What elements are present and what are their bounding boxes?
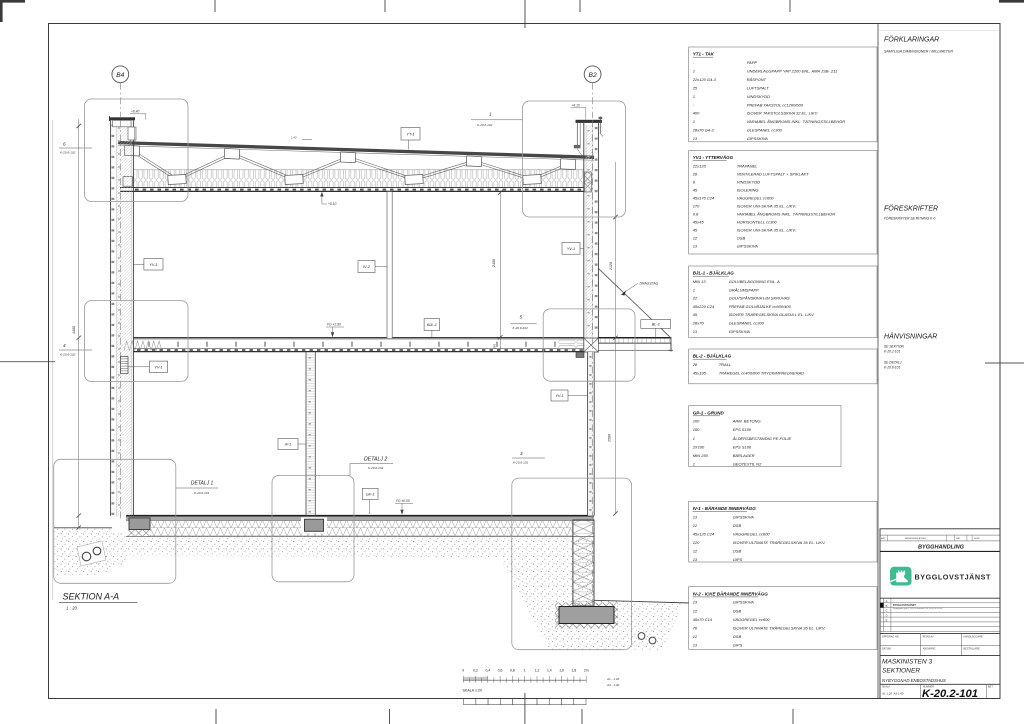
svg-text:2400: 2400 (492, 259, 496, 268)
svg-text:6: 6 (63, 142, 66, 147)
svg-text:+6.10: +6.10 (572, 104, 581, 108)
svg-text:45: 45 (693, 312, 698, 317)
svg-text:25: 25 (692, 85, 698, 90)
svg-text:IV-2 - ICKE BÄRANDE INNERVÄGG: IV-2 - ICKE BÄRANDE INNERVÄGG (693, 590, 769, 596)
svg-text:E: E (886, 618, 888, 622)
svg-text:RITAD AV: RITAD AV (923, 636, 934, 639)
svg-text:FÖRESKRIFTER SE RITNING K-0: FÖRESKRIFTER SE RITNING K-0 (884, 217, 935, 221)
svg-text:400: 400 (693, 111, 700, 116)
svg-text:12: 12 (693, 236, 698, 241)
svg-text:B2: B2 (589, 72, 597, 79)
svg-text:13: 13 (693, 643, 698, 648)
svg-text:28: 28 (692, 362, 698, 367)
svg-text:1,8: 1,8 (572, 669, 577, 673)
svg-text:12: 12 (693, 634, 698, 639)
svg-text:A1 1:20 A3 1:40: A1 1:20 A3 1:40 (881, 692, 904, 696)
svg-text:FÖRESKRIFTER: FÖRESKRIFTER (884, 205, 938, 213)
svg-text:YT1 - TAK: YT1 - TAK (693, 52, 715, 57)
svg-text:VÄGGREGEL cc600: VÄGGREGEL cc600 (733, 617, 771, 622)
svg-text:DRAGSTAG: DRAGSTAG (640, 282, 659, 286)
svg-text:FG +2.90: FG +2.90 (327, 323, 341, 327)
svg-text:0: 0 (462, 669, 464, 673)
svg-text:VARIABEL ÅNGBROMS INKL. TÄTNIN: VARIABEL ÅNGBROMS INKL. TÄTNINGSTILLBEHÖ… (747, 119, 846, 124)
svg-text:SE DETALJ: SE DETALJ (884, 361, 902, 365)
svg-text:BESTÄLLARE: BESTÄLLARE (964, 648, 980, 651)
svg-text:1,6: 1,6 (559, 669, 564, 673)
svg-text:DETALJ 2: DETALJ 2 (364, 457, 387, 463)
svg-text:45: 45 (693, 228, 698, 233)
svg-text:45x70 C14: 45x70 C14 (693, 617, 713, 622)
svg-text:TRALL: TRALL (719, 362, 731, 367)
svg-text:0,6: 0,6 (498, 669, 503, 673)
svg-text:YV1 - YTTERVÄGG: YV1 - YTTERVÄGG (693, 154, 734, 160)
svg-text:28x70: 28x70 (692, 321, 705, 326)
svg-text:OSB: OSB (733, 608, 742, 613)
svg-text:D: D (886, 614, 888, 618)
svg-text:MIN 250: MIN 250 (693, 453, 709, 458)
svg-text:GIPS: GIPS (733, 643, 743, 648)
svg-text:ÅLDERSBESTÄNDIG PE-FOLIE: ÅLDERSBESTÄNDIG PE-FOLIE (732, 436, 792, 441)
svg-text:45x120 C24: 45x120 C24 (693, 532, 715, 537)
svg-text:GF-1: GF-1 (366, 493, 375, 497)
svg-text:22x120 G4-3: 22x120 G4-3 (692, 77, 717, 82)
svg-text:70: 70 (693, 626, 698, 631)
svg-text:1:40: 1:40 (291, 136, 297, 140)
svg-text:BYGGLOVSTJÄNST: BYGGLOVSTJÄNST (915, 573, 991, 582)
svg-text:ISOLERING: ISOLERING (737, 188, 759, 193)
svg-text:+6.40: +6.40 (131, 110, 140, 114)
svg-text:13: 13 (693, 557, 698, 562)
svg-text:1: 1 (693, 287, 695, 292)
svg-text:PAPP: PAPP (747, 60, 758, 65)
svg-text:IV-1 - BÄRANDE INNERVÄGG: IV-1 - BÄRANDE INNERVÄGG (693, 505, 757, 511)
svg-text:VÄGGREGEL cc600: VÄGGREGEL cc600 (737, 196, 775, 201)
svg-text:MASKINISTEN 3: MASKINISTEN 3 (882, 659, 933, 666)
svg-text:IV-1: IV-1 (285, 443, 292, 447)
svg-text:ISOVER TAKSTOLSSKIVA 32 EL. LI: ISOVER TAKSTOLSSKIVA 32 EL. LIKV (747, 111, 818, 116)
svg-text:B4: B4 (116, 72, 124, 79)
svg-text:295: 295 (493, 344, 497, 350)
svg-text:BET: BET (988, 686, 993, 689)
svg-text:EPS S100: EPS S100 (733, 444, 752, 449)
svg-text:170: 170 (693, 204, 700, 209)
svg-text:DATUM: DATUM (882, 648, 891, 651)
svg-text:UPPDRAG NR: UPPDRAG NR (882, 636, 899, 639)
svg-text:K-20.6-101: K-20.6-101 (884, 366, 900, 370)
svg-text:13: 13 (693, 329, 698, 334)
svg-text:HANDLÄGGARE: HANDLÄGGARE (964, 636, 984, 639)
svg-text:1: 1 (693, 119, 695, 124)
svg-text:0.8: 0.8 (693, 212, 699, 217)
svg-text:K-20.2-101: K-20.2-101 (884, 350, 900, 354)
svg-text:DETALJ 1: DETALJ 1 (191, 481, 214, 487)
svg-text:PREFAB TAKSTOL cc1200/600: PREFAB TAKSTOL cc1200/600 (747, 102, 804, 107)
svg-text:FG ±0.00: FG ±0.00 (396, 499, 410, 503)
svg-text:GLESPANEL cc300: GLESPANEL cc300 (747, 128, 783, 133)
svg-text:+5.10: +5.10 (328, 202, 337, 206)
svg-text:ISOVER UNI-SKIVA 35 EL. LIKV.: ISOVER UNI-SKIVA 35 EL. LIKV. (737, 204, 796, 209)
svg-text:YV-1: YV-1 (555, 394, 563, 398)
svg-text:GIPSSKIVA: GIPSSKIVA (747, 136, 768, 141)
svg-text:GIPSSKIVA: GIPSSKIVA (733, 600, 754, 605)
svg-text:NYBYGGNAD ENBOSTADSHUS: NYBYGGNAD ENBOSTADSHUS (882, 678, 946, 683)
svg-text:1: 1 (524, 669, 526, 673)
svg-text:ISOVER ULTIMATE TRÄREGELSKIVA: ISOVER ULTIMATE TRÄREGELSKIVA 36 EL. LIK… (733, 540, 826, 545)
svg-text:45x170 C24: 45x170 C24 (693, 196, 715, 201)
svg-text:28x70 G4-3: 28x70 G4-3 (692, 128, 715, 133)
svg-text:GRÅLUMSPAPP: GRÅLUMSPAPP (729, 287, 759, 292)
svg-text:A1 - 1:20: A1 - 1:20 (606, 677, 620, 681)
svg-text:BJL-1: BJL-1 (427, 323, 437, 327)
svg-text:SE SEKTION: SE SEKTION (884, 345, 904, 349)
svg-text:5: 5 (520, 315, 523, 320)
svg-text:HORISONTELL cc300: HORISONTELL cc300 (737, 220, 778, 225)
svg-text:100: 100 (693, 427, 700, 432)
svg-text:GOLVSPÅNSKIVA LIM SKRUVAS: GOLVSPÅNSKIVA LIM SKRUVAS (729, 296, 790, 301)
svg-text:B: B (886, 604, 888, 608)
svg-text:12: 12 (693, 608, 698, 613)
svg-text:K-20.6-101: K-20.6-101 (513, 461, 529, 465)
svg-text:BYGGHANDLING: BYGGHANDLING (918, 544, 965, 550)
svg-text:K-20.6-102: K-20.6-102 (60, 353, 76, 357)
svg-text:ARM. BETONG: ARM. BETONG (732, 419, 761, 424)
svg-text:RÅSPONT: RÅSPONT (747, 77, 767, 82)
svg-text:GIPSSKIVA: GIPSSKIVA (737, 244, 758, 249)
svg-text:ANSVARIG: ANSVARIG (923, 648, 936, 651)
svg-text:K-20.6-102: K-20.6-102 (477, 123, 493, 127)
svg-text:100: 100 (693, 419, 700, 424)
svg-text:C: C (886, 609, 888, 613)
svg-text:BÄRLAGER: BÄRLAGER (733, 453, 755, 458)
svg-text:120: 120 (693, 540, 700, 545)
svg-text:12: 12 (693, 523, 698, 528)
svg-text:BYGGLOVSTJÄNST: BYGGLOVSTJÄNST (893, 604, 916, 607)
svg-text:1,2: 1,2 (535, 669, 540, 673)
svg-text:1,4: 1,4 (547, 669, 552, 673)
svg-text:45x220 C24: 45x220 C24 (693, 304, 715, 309)
svg-text:2m: 2m (584, 669, 589, 673)
svg-text:YV-1: YV-1 (154, 365, 162, 369)
svg-text:A3 - 1:40: A3 - 1:40 (606, 683, 620, 687)
svg-text:VÄGGREGEL cc600: VÄGGREGEL cc600 (733, 532, 771, 537)
svg-text:4: 4 (63, 343, 66, 348)
svg-text:SKALA 1:20: SKALA 1:20 (463, 689, 482, 693)
svg-text:0,4: 0,4 (485, 669, 490, 673)
svg-text:SEKTIONER: SEKTIONER (882, 668, 920, 675)
svg-text:12: 12 (693, 549, 698, 554)
svg-text:YV-1: YV-1 (567, 247, 575, 251)
svg-text:2500: 2500 (608, 434, 612, 443)
svg-text:45x195: 45x195 (693, 371, 707, 376)
svg-text:VINDSKYDD: VINDSKYDD (747, 94, 770, 99)
svg-text:1: 1 (489, 112, 492, 117)
svg-text:YV-1: YV-1 (149, 263, 157, 267)
svg-text:OSB: OSB (737, 236, 746, 241)
svg-text:GP-1 - GRUND: GP-1 - GRUND (693, 410, 725, 415)
svg-text:1: 1 (693, 94, 695, 99)
svg-text:0,8: 0,8 (510, 669, 515, 673)
svg-text:GIPSSKIVA: GIPSSKIVA (729, 329, 750, 334)
svg-text:ISOVER ULTIMATE TRÄREGELSKIVA: ISOVER ULTIMATE TRÄREGELSKIVA 36 EL. LIK… (733, 626, 826, 631)
svg-text:K-20.6-102: K-20.6-102 (60, 151, 76, 155)
svg-text:ÄNDRINGEN AVSER: ÄNDRINGEN AVSER (904, 537, 926, 540)
svg-text:28: 28 (692, 172, 698, 177)
svg-text:1 : 20: 1 : 20 (66, 606, 78, 611)
svg-text:GIPSSKIVA: GIPSSKIVA (733, 514, 754, 519)
svg-text:TRÄPANEL: TRÄPANEL (737, 164, 758, 169)
svg-text:ISOVER UNI-SKIVA 35 EL. LIKV.: ISOVER UNI-SKIVA 35 EL. LIKV. (737, 228, 796, 233)
svg-text:EPS S100: EPS S100 (733, 427, 752, 432)
svg-text:K-20.6-102: K-20.6-102 (513, 326, 529, 330)
svg-text:45: 45 (693, 188, 698, 193)
svg-text:K-20.6-101: K-20.6-101 (368, 466, 384, 470)
svg-text:Lagergrens gata 2, 652 26 Karl: Lagergrens gata 2, 652 26 Karlstad Tel: … (893, 607, 943, 610)
svg-text:VENTILERAD LUFTSPALT + SPIKLÄK: VENTILERAD LUFTSPALT + SPIKLÄKT (737, 172, 810, 177)
svg-text:SKALA: SKALA (882, 686, 890, 689)
svg-text:1: 1 (693, 68, 695, 73)
svg-text:45x45: 45x45 (693, 220, 705, 225)
svg-text:GIPS: GIPS (733, 557, 743, 562)
svg-text:SAMTLIGA DIMENSIONER I MILLIME: SAMTLIGA DIMENSIONER I MILLIMETER (884, 50, 953, 54)
svg-text:VINDSKYDD: VINDSKYDD (737, 180, 760, 185)
svg-text:GOLVBELÄGGNING ENL. A: GOLVBELÄGGNING ENL. A (729, 279, 780, 284)
svg-text:UNDERLAGSPAPP YAP 2200 ENL. AM: UNDERLAGSPAPP YAP 2200 ENL. AMA JSB-.211 (747, 68, 838, 73)
svg-text:YT-1: YT-1 (407, 132, 415, 136)
svg-text:GEOTEXTIL N2: GEOTEXTIL N2 (733, 462, 762, 467)
svg-text:0,2: 0,2 (473, 669, 478, 673)
svg-text:K-20.6-101: K-20.6-101 (194, 491, 210, 495)
svg-text:IV-2: IV-2 (363, 265, 371, 269)
svg-text:2X100: 2X100 (692, 444, 705, 449)
svg-text:BL-2: BL-2 (652, 323, 661, 327)
svg-text:GLESPANEL cc300: GLESPANEL cc300 (729, 321, 765, 326)
svg-text:A: A (886, 599, 888, 603)
svg-text:DAT: DAT (956, 537, 961, 540)
svg-text:22: 22 (692, 296, 698, 301)
svg-text:OSB: OSB (733, 549, 742, 554)
svg-text:HÄNVISNINGAR: HÄNVISNINGAR (884, 333, 937, 341)
svg-text:FÖRKLARINGAR: FÖRKLARINGAR (884, 36, 939, 44)
svg-text:13: 13 (693, 244, 698, 249)
svg-text:BJL-1 - BJÄLKLAG: BJL-1 - BJÄLKLAG (693, 270, 735, 276)
svg-text:1: 1 (693, 436, 695, 441)
svg-text:SIGN: SIGN (974, 538, 980, 540)
svg-text:13: 13 (693, 514, 698, 519)
svg-text:MIN 13: MIN 13 (693, 279, 707, 284)
svg-text:3: 3 (520, 451, 523, 456)
svg-text:SEKTION A-A: SEKTION A-A (63, 592, 120, 602)
svg-text:LUFTSPALT: LUFTSPALT (747, 85, 770, 90)
svg-text:13: 13 (693, 600, 698, 605)
svg-text:ANT: ANT (880, 537, 886, 540)
svg-text:OSB: OSB (733, 523, 742, 528)
svg-text:2120: 2120 (609, 262, 613, 271)
svg-text:BL-2 - BJÄLKLAG: BL-2 - BJÄLKLAG (693, 353, 732, 359)
svg-text:VARIABEL ÅNGBROMS INKL. TÄTNIN: VARIABEL ÅNGBROMS INKL. TÄTNINGSTILLBEHÖ… (737, 212, 836, 217)
svg-text:ISOVER TRÄREGELSKIVA GLASULL E: ISOVER TRÄREGELSKIVA GLASULL EL. LIKV (729, 312, 814, 317)
svg-text:OSB: OSB (733, 634, 742, 639)
svg-text:13: 13 (693, 136, 698, 141)
svg-text:PREFAB GOLVBJÄLKE cc600/400: PREFAB GOLVBJÄLKE cc600/400 (729, 304, 792, 309)
svg-text:22x120: 22x120 (692, 164, 707, 169)
svg-text:TRÄREGEL cc400/600 TRYCKIMPREG: TRÄREGEL cc400/600 TRYCKIMPREGNERAD (719, 371, 804, 376)
svg-text:4400: 4400 (72, 326, 76, 334)
svg-text:1: 1 (693, 462, 695, 467)
